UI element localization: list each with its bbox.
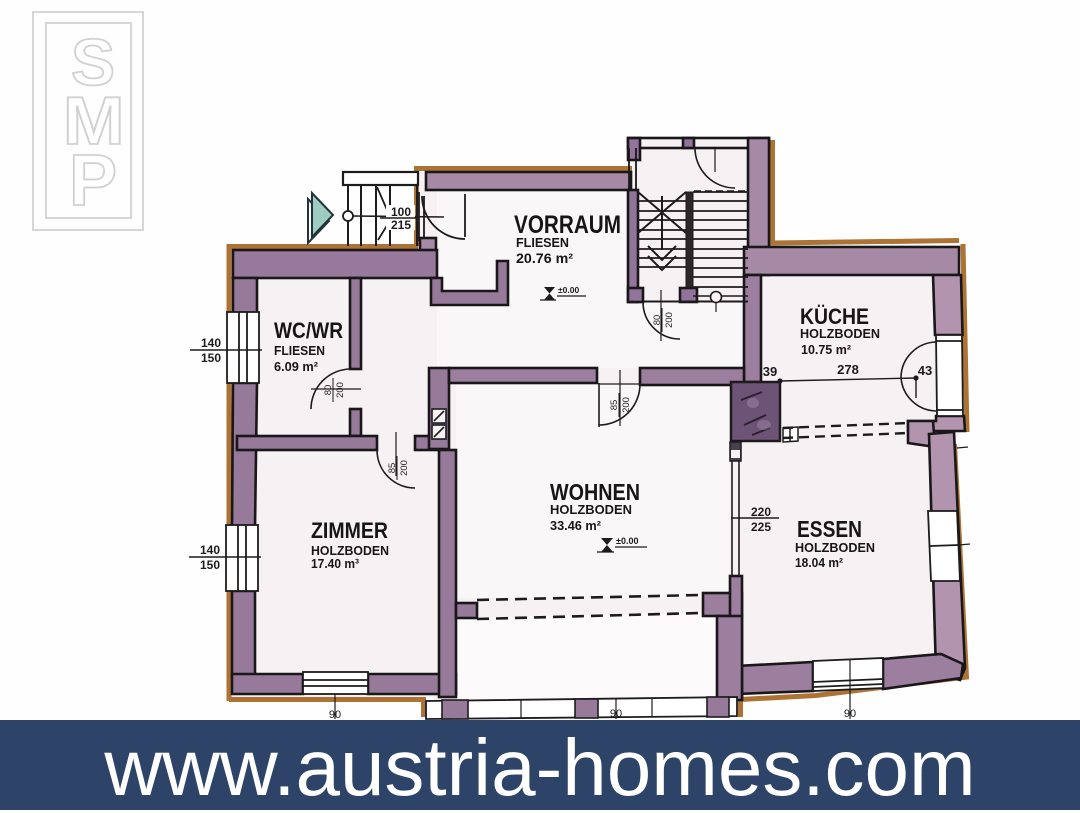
svg-text:HOLZBODEN: HOLZBODEN [550, 503, 632, 517]
svg-text:6.09 m²: 6.09 m² [274, 359, 319, 374]
svg-text:150: 150 [201, 351, 221, 365]
svg-text:39: 39 [763, 364, 777, 379]
svg-text:33.46 m²: 33.46 m² [550, 518, 602, 533]
svg-text:HOLZBODEN: HOLZBODEN [795, 541, 875, 555]
svg-text:WC/WR: WC/WR [274, 318, 343, 343]
svg-text:WOHNEN: WOHNEN [550, 479, 640, 505]
svg-text:225: 225 [751, 520, 771, 534]
svg-text:FLIESEN: FLIESEN [516, 235, 569, 250]
svg-text:140: 140 [201, 336, 221, 350]
svg-text:85: 85 [387, 463, 398, 474]
svg-text:KÜCHE: KÜCHE [800, 304, 869, 329]
svg-text:43: 43 [918, 363, 932, 378]
svg-text:90: 90 [844, 708, 856, 720]
svg-text:80: 80 [323, 385, 334, 396]
svg-text:±0.00: ±0.00 [616, 536, 638, 546]
svg-text:HOLZBODEN: HOLZBODEN [800, 327, 880, 341]
svg-text:17.40 m³: 17.40 m³ [311, 556, 360, 571]
svg-text:200: 200 [621, 397, 632, 413]
svg-text:10.75 m²: 10.75 m² [801, 342, 852, 357]
svg-text:200: 200 [399, 460, 410, 476]
svg-text:100: 100 [391, 205, 411, 219]
svg-text:85: 85 [609, 400, 620, 411]
svg-text:220: 220 [751, 505, 771, 519]
svg-text:200: 200 [335, 382, 346, 398]
svg-text:±0.00: ±0.00 [558, 285, 579, 295]
svg-text:18.04 m²: 18.04 m² [795, 555, 844, 570]
svg-text:ZIMMER: ZIMMER [311, 518, 388, 543]
svg-text:P: P [69, 141, 117, 221]
svg-text:20.76 m²: 20.76 m² [516, 251, 574, 266]
svg-text:140: 140 [200, 543, 220, 557]
svg-text:150: 150 [200, 558, 220, 572]
svg-text:278: 278 [837, 362, 859, 377]
svg-text:90: 90 [610, 708, 622, 720]
svg-text:215: 215 [391, 218, 411, 232]
svg-text:ESSEN: ESSEN [797, 516, 862, 542]
svg-text:FLIESEN: FLIESEN [274, 343, 325, 358]
svg-text:200: 200 [664, 312, 675, 328]
svg-text:80: 80 [652, 315, 663, 326]
